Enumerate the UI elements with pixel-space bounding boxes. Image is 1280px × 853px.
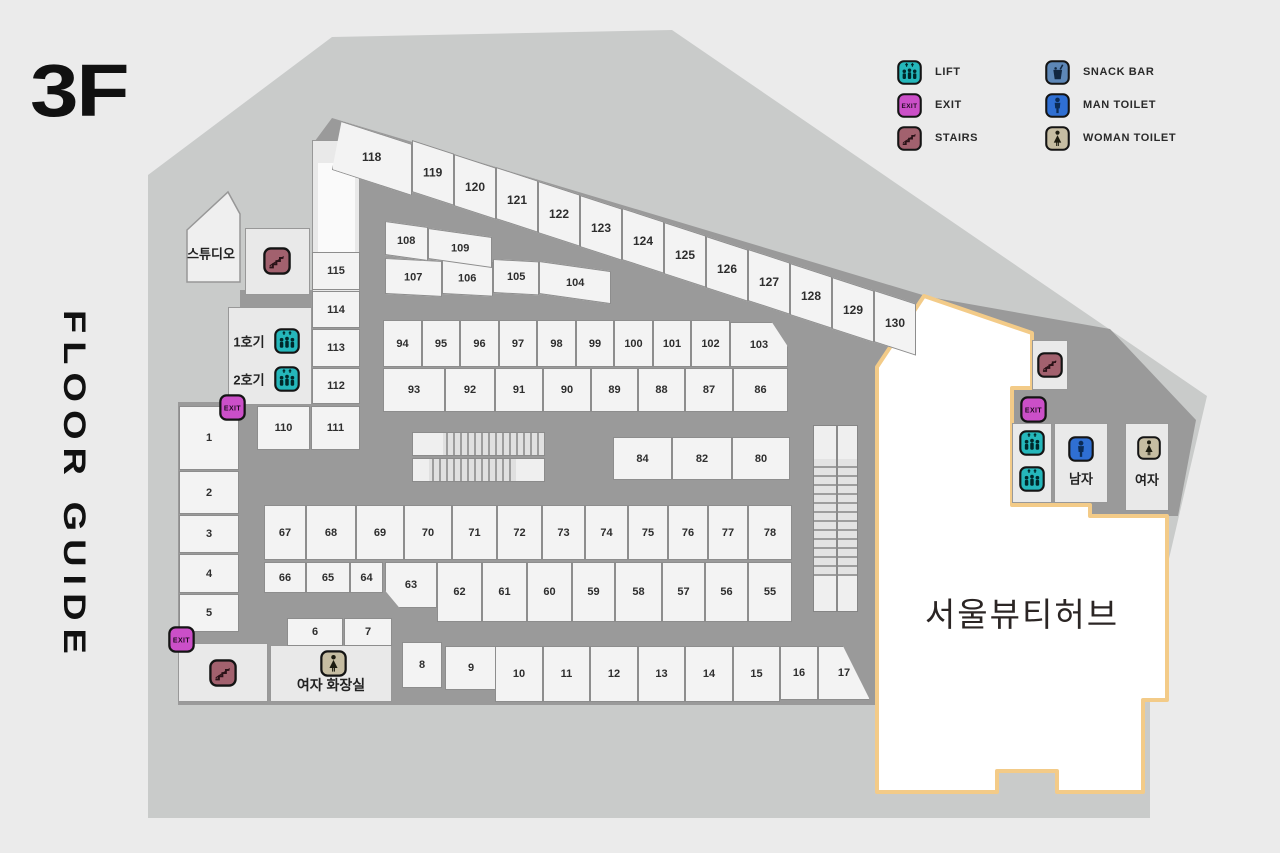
staircase-divider [836, 426, 838, 611]
escalator-landing [516, 459, 544, 481]
escalator-landing [413, 433, 443, 455]
escalator-landing [413, 459, 429, 481]
escalator-lower [412, 458, 545, 482]
floor-title: 3F [30, 48, 127, 133]
escalator-upper [412, 432, 545, 456]
floor-guide-canvas: 1234567891011121314151617555657585960616… [0, 0, 1280, 853]
floor-guide-title: FLOOR GUIDE [56, 310, 91, 662]
plan-background-svg [0, 0, 1280, 853]
staircase-right [813, 425, 858, 612]
